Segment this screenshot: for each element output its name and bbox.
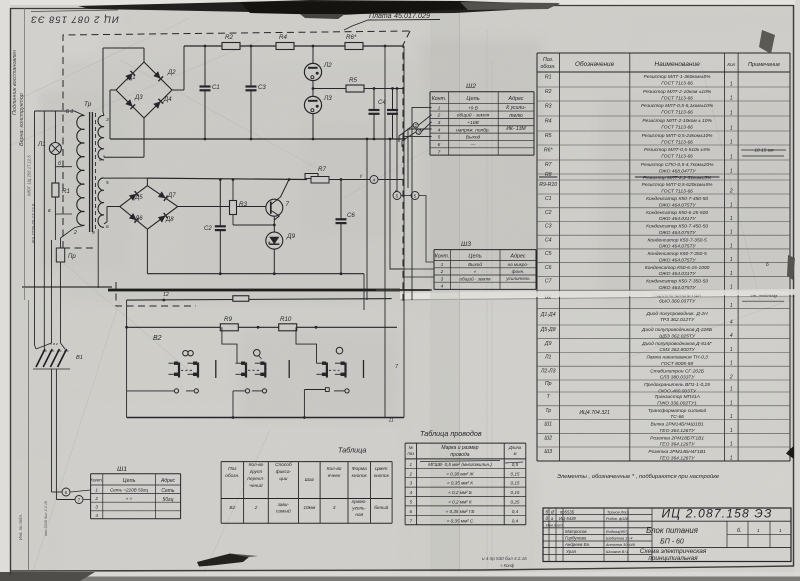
svg-text:Способ: Способ: [275, 462, 292, 468]
svg-text:1: 1: [730, 202, 733, 208]
svg-text:Д2: Д2: [167, 70, 176, 76]
svg-text:фикса-: фикса-: [276, 469, 292, 475]
svg-text:Подлинник восстановлен: Подлинник восстановлен: [12, 50, 18, 115]
svg-text:Тр: Тр: [84, 101, 92, 108]
svg-text:ГОСТ 7113-66: ГОСТ 7113-66: [661, 188, 693, 194]
svg-text:Предохранитель ВП1-1-0,25: Предохранитель ВП1-1-0,25: [644, 382, 710, 388]
svg-text:1: 1: [730, 216, 733, 222]
svg-text:Диод полупроводников Д-226Б: Диод полупроводников Д-226Б: [641, 327, 713, 333]
svg-text:1: 1: [441, 262, 444, 268]
svg-text:Трансформатор силовой: Трансформатор силовой: [648, 407, 707, 414]
svg-text:Тронов Лоск: Тронов Лоск: [607, 510, 629, 514]
svg-text:Родов. ф12В: Родов. ф12В: [606, 517, 629, 521]
svg-text:Обозначение: Обозначение: [575, 60, 615, 68]
svg-text:ОЖО 464.075ТУ: ОЖО 464.075ТУ: [659, 230, 697, 236]
svg-text:Горбунова: Горбунова: [565, 536, 587, 541]
svg-text:Ш2: Ш2: [544, 435, 552, 441]
svg-text:Л1: Л1: [37, 141, 46, 148]
svg-text:Андреев Ев.: Андреев Ев.: [564, 542, 590, 547]
svg-text:Резистор МЛТ-2,2-51ком±5%: Резистор МЛТ-2,2-51ком±5%: [643, 175, 712, 181]
svg-text:б.: б.: [737, 528, 742, 534]
svg-text:C2: C2: [545, 210, 552, 216]
svg-text:3: 3: [333, 505, 336, 511]
svg-text:симый: симый: [276, 508, 291, 515]
svg-text:C2: C2: [204, 226, 212, 232]
svg-text:0,4: 0,4: [512, 518, 519, 523]
svg-text:К усили-: К усили-: [506, 105, 526, 111]
svg-text:кмп 5330 бил 4 2.16: кмп 5330 бил 4 2.16: [44, 500, 48, 536]
svg-text:R2: R2: [225, 34, 233, 41]
svg-text:Длина: Длина: [508, 445, 522, 450]
svg-text:Наименование: Наименование: [654, 61, 700, 68]
svg-text:Конденсатор К50-6-25-500: Конденсатор К50-6-25-500: [646, 210, 708, 216]
svg-text:C4: C4: [545, 237, 552, 243]
svg-text:уголь-: уголь-: [351, 507, 367, 512]
svg-text:—: —: [470, 143, 476, 148]
svg-text:« «: « «: [126, 496, 133, 501]
svg-text:0,4: 0,4: [512, 509, 519, 514]
svg-text:2: 2: [73, 230, 77, 236]
svg-text:ОЮО.480.003ТУ: ОЮО.480.003ТУ: [658, 388, 697, 394]
svg-text:R9: R9: [224, 316, 232, 323]
svg-text:1: 1: [730, 347, 733, 353]
svg-text:Инв. № подл.: Инв. № подл.: [18, 514, 23, 540]
svg-text:+10В: +10В: [467, 120, 479, 126]
svg-text:R10: R10: [280, 316, 292, 323]
svg-text:белый: белый: [374, 504, 388, 511]
svg-text:В2: В2: [229, 505, 235, 511]
svg-text:Пр: Пр: [545, 381, 552, 387]
svg-text:Транзистор МП41А: Транзистор МП41А: [654, 394, 700, 400]
svg-text:Тр: Тр: [545, 408, 551, 414]
svg-text:1: 1: [730, 82, 733, 88]
svg-text:1: 1: [730, 303, 733, 309]
svg-text:принципиальная: принципиальная: [648, 555, 698, 562]
svg-text:9: 9: [92, 230, 95, 236]
svg-text:C3: C3: [258, 85, 266, 91]
svg-text:ная: ная: [355, 513, 363, 518]
svg-text:4: 4: [441, 284, 444, 290]
svg-text:R5: R5: [545, 133, 552, 139]
svg-text:Сеть: Сеть: [161, 488, 175, 494]
svg-text:Резистор МЛТ-0,5-510к ±5%: Резистор МЛТ-0,5-510к ±5%: [644, 147, 711, 153]
svg-text:б в г: б в г: [50, 342, 58, 346]
svg-text:ТРЗ 362.012ТУ: ТРЗ 362.012ТУ: [660, 317, 695, 323]
svg-text:R6*: R6*: [544, 148, 554, 154]
svg-text:зави-: зави-: [277, 503, 290, 508]
svg-text:Цепь: Цепь: [123, 478, 136, 484]
svg-text:РЭ 7776-76 17.12.6: РЭ 7776-76 17.12.6: [31, 203, 36, 243]
svg-text:R4: R4: [545, 119, 552, 125]
svg-text:СЛЗ 380.033ТУ: СЛЗ 380.033ТУ: [660, 375, 696, 381]
svg-text:обозн.: обозн.: [541, 64, 556, 70]
svg-text:Rодина(957): Rодина(957): [606, 530, 629, 534]
svg-text:3: 3: [106, 117, 109, 123]
svg-text:2: 2: [437, 113, 441, 119]
svg-text:6: 6: [766, 262, 769, 268]
svg-text:1: 1: [730, 230, 733, 236]
svg-text:телю: телю: [509, 113, 523, 119]
svg-text:Ш2: Ш2: [466, 83, 476, 90]
svg-text:Матросов: Матросов: [565, 529, 587, 534]
svg-text:Элементы , обозначенные * , п: Элементы , обозначенные * , подбираются …: [557, 473, 720, 480]
svg-text:Конденсатор К50-7-350-50: Конденсатор К50-7-350-50: [646, 279, 708, 285]
svg-text:«: «: [474, 269, 477, 274]
svg-text:Сеть ~220В 50гц: Сеть ~220В 50гц: [110, 487, 148, 492]
svg-text:ИК- 13М: ИК- 13М: [506, 126, 526, 132]
svg-text:ОЖО 464.075ТУ: ОЖО 464.075ТУ: [659, 202, 697, 208]
svg-text:1: 1: [730, 111, 733, 117]
svg-text:C3: C3: [545, 224, 552, 230]
svg-text:обозн.: обозн.: [225, 473, 239, 479]
svg-text:Д6: Д6: [134, 216, 143, 222]
svg-text:1: 1: [757, 528, 760, 533]
svg-text:усилитель: усилитель: [505, 276, 530, 281]
svg-text:1: 1: [730, 271, 733, 277]
svg-text:3: 3: [417, 130, 420, 136]
svg-text:Д5: Д5: [134, 195, 143, 201]
svg-text:« 0,2 мм² К: « 0,2 мм² К: [448, 500, 472, 505]
svg-text:1: 1: [410, 462, 413, 467]
svg-text:C7: C7: [545, 279, 553, 285]
svg-text:2: 2: [729, 375, 733, 381]
svg-text:ИЦ4.704.321: ИЦ4.704.321: [579, 410, 610, 416]
svg-text:Выход: Выход: [468, 262, 482, 267]
svg-text:Д3: Д3: [134, 95, 143, 101]
svg-text:Адрес: Адрес: [507, 96, 524, 102]
svg-text:R1: R1: [62, 188, 70, 195]
svg-text:5: 5: [438, 135, 441, 141]
svg-text:кнопок: кнопок: [352, 474, 368, 479]
svg-text:« 0,35 мм² К: « 0,35 мм² К: [447, 481, 473, 486]
svg-text:общий - земля: общий - земля: [457, 112, 490, 119]
svg-text:ОЖО 464.075ТУ: ОЖО 464.075ТУ: [659, 285, 697, 291]
svg-text:Выход: Выход: [466, 135, 481, 141]
svg-text:С6: С6: [347, 213, 355, 219]
svg-text:прямо-: прямо-: [352, 500, 368, 505]
svg-text:1: 1: [730, 361, 733, 367]
svg-text:R6*: R6*: [346, 34, 357, 41]
svg-text:1: 1: [730, 257, 733, 263]
svg-text:1: 1: [730, 96, 733, 102]
svg-text:Поз: Поз: [228, 466, 237, 472]
svg-text:R7: R7: [545, 162, 553, 168]
svg-text:м: м: [514, 451, 517, 456]
svg-text:R3: R3: [239, 201, 247, 208]
svg-text:1: 1: [730, 456, 733, 462]
svg-text:6: 6: [438, 142, 441, 148]
svg-text:напряж. полбр.: напряж. полбр.: [456, 127, 490, 133]
svg-text:Розетка 2РМ18Б7Г1В1: Розетка 2РМ18Б7Г1В1: [650, 436, 704, 442]
svg-text:СМ3 362.800ТУ: СМ3 362.800ТУ: [659, 347, 695, 353]
svg-text:кнопок: кнопок: [374, 474, 390, 479]
svg-text:Марка и размер: Марка и размер: [441, 445, 478, 451]
svg-text:ЩБЗ 362.025ТУ: ЩБЗ 362.025ТУ: [659, 333, 696, 339]
svg-text:4: 4: [730, 333, 733, 339]
svg-text:ГОСТ 7113-66: ГОСТ 7113-66: [661, 139, 693, 145]
svg-text:ГОСТ 7113-66: ГОСТ 7113-66: [661, 153, 693, 159]
svg-text:Резистор МЛТ-0,5-5,1ком±10%: Резистор МЛТ-0,5-5,1ком±10%: [641, 103, 714, 109]
svg-text:1: 1: [730, 155, 733, 161]
svg-text:ячеек: ячеек: [327, 474, 341, 479]
svg-text:Кол-во: Кол-во: [249, 462, 264, 468]
svg-text:Конденсатор К50-7-450-50: Конденсатор К50-7-450-50: [646, 224, 708, 230]
svg-text:общий - земля: общий - земля: [459, 275, 491, 281]
svg-text:Адрес: Адрес: [509, 254, 526, 260]
svg-text:7: 7: [286, 201, 290, 208]
svg-text:7: 7: [438, 149, 441, 155]
svg-text:R1: R1: [545, 75, 552, 81]
svg-text:Д1: Д1: [127, 75, 136, 81]
svg-text:Урал: Урал: [566, 549, 577, 554]
svg-text:1: 1: [730, 400, 733, 406]
svg-text:+9 В: +9 В: [468, 105, 479, 111]
svg-text:2: 2: [409, 471, 413, 476]
svg-text:ИЦ 2 087 158 ЭЗ: ИЦ 2 087 158 ЭЗ: [30, 14, 119, 25]
svg-text:4: 4: [438, 127, 441, 133]
svg-text:Цепь: Цепь: [466, 96, 479, 102]
svg-text:Д9: Д9: [286, 233, 295, 240]
svg-text:1: 1: [730, 126, 733, 132]
svg-text:Поз.: Поз.: [543, 57, 553, 63]
svg-text:Конденсатор К50-7-350-5: Конденсатор К50-7-350-5: [647, 251, 706, 257]
svg-text:ОЖО 464.031ТУ: ОЖО 464.031ТУ: [659, 216, 697, 222]
svg-text:C5: C5: [545, 251, 552, 257]
svg-text:пр553Б: пр553Б: [560, 509, 575, 514]
svg-text:δ: δ: [546, 516, 549, 521]
svg-text:Л1: Л1: [544, 355, 552, 361]
svg-text:2: 2: [440, 269, 444, 275]
svg-text:1: 1: [730, 428, 733, 434]
svg-text:5: 5: [410, 500, 413, 505]
svg-text:поз: поз: [408, 451, 415, 456]
svg-text:Цепь: Цепь: [468, 254, 481, 260]
svg-text:Резистор МЛТ-0,5-24ком±10%: Резистор МЛТ-0,5-24ком±10%: [642, 133, 714, 139]
svg-text:1: 1: [730, 442, 733, 448]
svg-text:Резистор МЛТ-2-10ком ±10%: Резистор МЛТ-2-10ком ±10%: [643, 89, 712, 95]
svg-text:Шабалова 10.4: Шабалова 10.4: [606, 537, 633, 541]
svg-text:5: 5: [396, 193, 399, 199]
svg-text:3: 3: [410, 481, 413, 486]
svg-text:Диод полупроводников Д-814Г: Диод полупроводников Д-814Г: [641, 341, 712, 347]
svg-text:6ЫО.360.037ТУ: 6ЫО.360.037ТУ: [659, 299, 696, 305]
svg-text:1: 1: [95, 487, 98, 492]
svg-text:Цвет: Цвет: [375, 466, 388, 472]
svg-text:« 0,35 мм² С: « 0,35 мм² С: [447, 518, 474, 523]
svg-text:1: 1: [730, 414, 733, 420]
svg-text:ГЕО 364.126ТУ: ГЕО 364.126ТУ: [660, 428, 696, 434]
svg-text:Резистор СПО-0,5-4,7ком±20%: Резистор СПО-0,5-4,7ком±20%: [641, 162, 714, 168]
svg-text:ГОСТ 7113-66: ГОСТ 7113-66: [661, 80, 693, 86]
svg-text:4: 4: [99, 157, 102, 163]
svg-text:1: 1: [779, 528, 782, 533]
svg-text:Пр: Пр: [68, 254, 76, 260]
svg-text:ОЖО 468.047ТУ: ОЖО 468.047ТУ: [659, 168, 697, 174]
svg-text:Шаг: Шаг: [305, 477, 315, 483]
svg-text:3: 3: [438, 120, 441, 126]
svg-text:6: 6: [106, 224, 109, 230]
svg-text:3: 3: [95, 505, 98, 510]
svg-text:2: 2: [94, 496, 98, 501]
svg-text:Примечание: Примечание: [748, 62, 780, 68]
svg-text:2: 2: [414, 123, 417, 129]
svg-text:7: 7: [410, 518, 413, 523]
svg-text:Конт.: Конт.: [435, 254, 450, 260]
svg-text:« 0,35 мм² ГБ: « 0,35 мм² ГБ: [446, 509, 475, 514]
svg-text:чений: чений: [249, 482, 262, 489]
svg-text:ТС-66: ТС-66: [670, 414, 684, 420]
svg-text:групп: групп: [250, 470, 263, 475]
svg-text:10мм: 10мм: [303, 505, 316, 511]
svg-text:5: 5: [106, 180, 109, 186]
svg-text:Конт.: Конт.: [90, 478, 103, 483]
svg-text:В1: В1: [76, 355, 83, 361]
svg-text:R3: R3: [545, 104, 552, 110]
svg-text:Д7: Д7: [167, 193, 176, 199]
svg-text:на микро-: на микро-: [508, 262, 529, 267]
svg-text:ОЖО 464.031ТУ: ОЖО 464.031ТУ: [659, 271, 697, 277]
svg-text:5: 5: [414, 193, 417, 199]
svg-text:Блок питания: Блок питания: [646, 526, 699, 535]
svg-text:б: б: [58, 161, 61, 167]
svg-text:ГОСТ 7113-66: ГОСТ 7113-66: [661, 95, 693, 101]
svg-text:2: 2: [729, 189, 733, 195]
svg-text:Форма: Форма: [352, 466, 367, 472]
svg-text:Розетка 2РМ14БН4Г1В1: Розетка 2РМ14БН4Г1В1: [648, 449, 706, 455]
svg-text:Плата: Плата: [369, 13, 392, 20]
svg-text:ОЖО 464.075ТУ: ОЖО 464.075ТУ: [659, 244, 697, 250]
svg-text:Ш3: Ш3: [461, 241, 471, 248]
svg-text:Ш1: Ш1: [117, 466, 127, 473]
svg-text:Д9: Д9: [544, 341, 552, 347]
svg-text:в: в: [48, 208, 51, 214]
svg-text:1: 1: [730, 243, 733, 249]
svg-text:Резистор МЛТ-1-360ком±5%: Резистор МЛТ-1-360ком±5%: [644, 74, 711, 80]
svg-text:Кол: Кол: [727, 62, 735, 67]
svg-text:перекл-: перекл-: [247, 477, 265, 482]
svg-text:C1: C1: [545, 196, 552, 202]
svg-text:« 0,2 мм² Б: « 0,2 мм² Б: [448, 490, 472, 495]
svg-text:ГОСТ 7113-66: ГОСТ 7113-66: [661, 109, 693, 115]
svg-text:Изм лист: Изм лист: [546, 523, 562, 527]
svg-text:№: №: [409, 445, 414, 450]
svg-text:Стабилитрон СГ-202Б: Стабилитрон СГ-202Б: [650, 368, 705, 374]
svg-text:0,15: 0,15: [511, 471, 520, 476]
svg-text:Адрес: Адрес: [160, 478, 176, 484]
svg-text:Таблица: Таблица: [338, 446, 366, 455]
svg-text:3: 3: [441, 276, 444, 282]
svg-text:Вилка 2РМ14БН4Ш1В1: Вилка 2РМ14БН4Ш1В1: [650, 422, 703, 428]
svg-text:R2: R2: [545, 89, 552, 95]
svg-text:МЮГ 1Щ 256 17.12.6: МЮГ 1Щ 256 17.12.6: [27, 155, 32, 196]
svg-text:R9-R10: R9-R10: [539, 182, 557, 188]
svg-text:2: 2: [254, 505, 258, 511]
svg-text:1: 1: [730, 387, 733, 393]
svg-text:6: 6: [410, 509, 413, 514]
svg-text:C1: C1: [212, 85, 220, 91]
svg-text:ГОСТ 7113-66: ГОСТ 7113-66: [661, 124, 693, 130]
svg-text:1: 1: [730, 140, 733, 146]
svg-text:R4: R4: [279, 34, 287, 41]
svg-text:ции: ции: [279, 477, 287, 482]
svg-text:R7: R7: [318, 166, 326, 173]
svg-text:Верна: конструктор: Верна: конструктор: [19, 93, 25, 146]
svg-text:Конденсатор К50-7-450-50: Конденсатор К50-7-450-50: [646, 196, 708, 202]
svg-text:МГШВ- 0,5 мм² (многожильн.): МГШВ- 0,5 мм² (многожильн.): [428, 462, 492, 467]
svg-text:4: 4: [95, 513, 98, 518]
svg-text:Лампа накаливания ТН-0,3: Лампа накаливания ТН-0,3: [645, 355, 708, 361]
svg-text:0,15: 0,15: [511, 490, 520, 495]
svg-text:Конт.: Конт.: [432, 96, 447, 102]
svg-text:1: 1: [730, 169, 733, 175]
svg-text:Л2: Л2: [323, 62, 332, 69]
svg-text:Ш1: Ш1: [544, 422, 552, 428]
svg-text:Диод полупроводник. Д-2Н: Диод полупроводник. Д-2Н: [646, 311, 709, 317]
svg-text:11: 11: [389, 418, 394, 424]
svg-text:ИЦ-5439: ИЦ-5439: [559, 516, 576, 521]
svg-text:4: 4: [410, 490, 413, 495]
svg-text:ОЖО 464.075ТУ: ОЖО 464.075ТУ: [659, 257, 697, 263]
svg-text:провода: провода: [450, 452, 469, 458]
svg-text:БП - 60: БП - 60: [660, 539, 684, 546]
svg-text:Д8: Д8: [165, 217, 174, 223]
svg-text:б: б: [546, 509, 549, 514]
svg-text:C6: C6: [545, 265, 552, 271]
svg-text:6: 6: [65, 490, 68, 496]
svg-text:Л3: Л3: [323, 95, 332, 102]
svg-text:45.017.029: 45.017.029: [394, 11, 430, 20]
svg-text:50гц: 50гц: [163, 497, 174, 503]
svg-text:+ Конф: + Конф: [500, 563, 515, 568]
svg-text:« 0,38 мм² Ж: « 0,38 мм² Ж: [446, 471, 474, 476]
svg-text:ИЦ 2.087.158 ЭЗ: ИЦ 2.087.158 ЭЗ: [661, 507, 772, 521]
svg-text:Д4: Д4: [163, 97, 172, 103]
svg-text:7: 7: [78, 497, 81, 503]
svg-text:R5: R5: [349, 77, 357, 84]
svg-text:Антонов 30.449: Антонов 30.449: [605, 543, 636, 547]
svg-text:ПЖО 336.002ТУ1: ПЖО 336.002ТУ1: [657, 400, 697, 406]
svg-text:Резистор МЛТ-0,5-620ком±5%: Резистор МЛТ-0,5-620ком±5%: [642, 182, 714, 188]
svg-text:ГОСТ 8005-58: ГОСТ 8005-58: [661, 361, 693, 367]
svg-text:фонн.: фонн.: [512, 269, 525, 274]
svg-text:12: 12: [163, 292, 169, 298]
svg-text:0,15: 0,15: [511, 481, 520, 486]
svg-text:Конденсатор К50-7-350-5: Конденсатор К50-7-350-5: [647, 237, 706, 243]
svg-text:Шишков В.Ч.: Шишков В.Ч.: [606, 550, 629, 554]
svg-text:Ш3: Ш3: [544, 449, 552, 455]
svg-text:Л2-Л3: Л2-Л3: [540, 368, 556, 374]
svg-text:и 4 пр 530 бил 4 2.16: и 4 пр 530 бил 4 2.16: [482, 556, 527, 561]
svg-text:ГЕО 364.126ТУ: ГЕО 364.126ТУ: [660, 442, 696, 448]
svg-text:Д5-Д8: Д5-Д8: [540, 327, 556, 333]
svg-text:В2: В2: [153, 335, 162, 342]
svg-text:Кол-во: Кол-во: [327, 466, 342, 472]
svg-text:ГЕО 364.126ТУ: ГЕО 364.126ТУ: [660, 455, 696, 461]
svg-text:Таблица проводов: Таблица проводов: [420, 429, 482, 438]
svg-text:Ø: Ø: [550, 509, 555, 514]
svg-text:Б 1: Б 1: [66, 109, 74, 115]
svg-text:0,25: 0,25: [511, 500, 520, 505]
svg-text:Д1-Д4: Д1-Д4: [540, 312, 556, 318]
svg-text:Резистор МЛТ-2-10ком ± 10%: Резистор МЛТ-2-10ком ± 10%: [642, 118, 712, 124]
svg-text:4: 4: [730, 320, 733, 326]
svg-text:4: 4: [373, 177, 376, 183]
svg-text:Конденсатор К50-6-15-1000: Конденсатор К50-6-15-1000: [645, 265, 710, 271]
svg-text:1: 1: [438, 105, 441, 111]
